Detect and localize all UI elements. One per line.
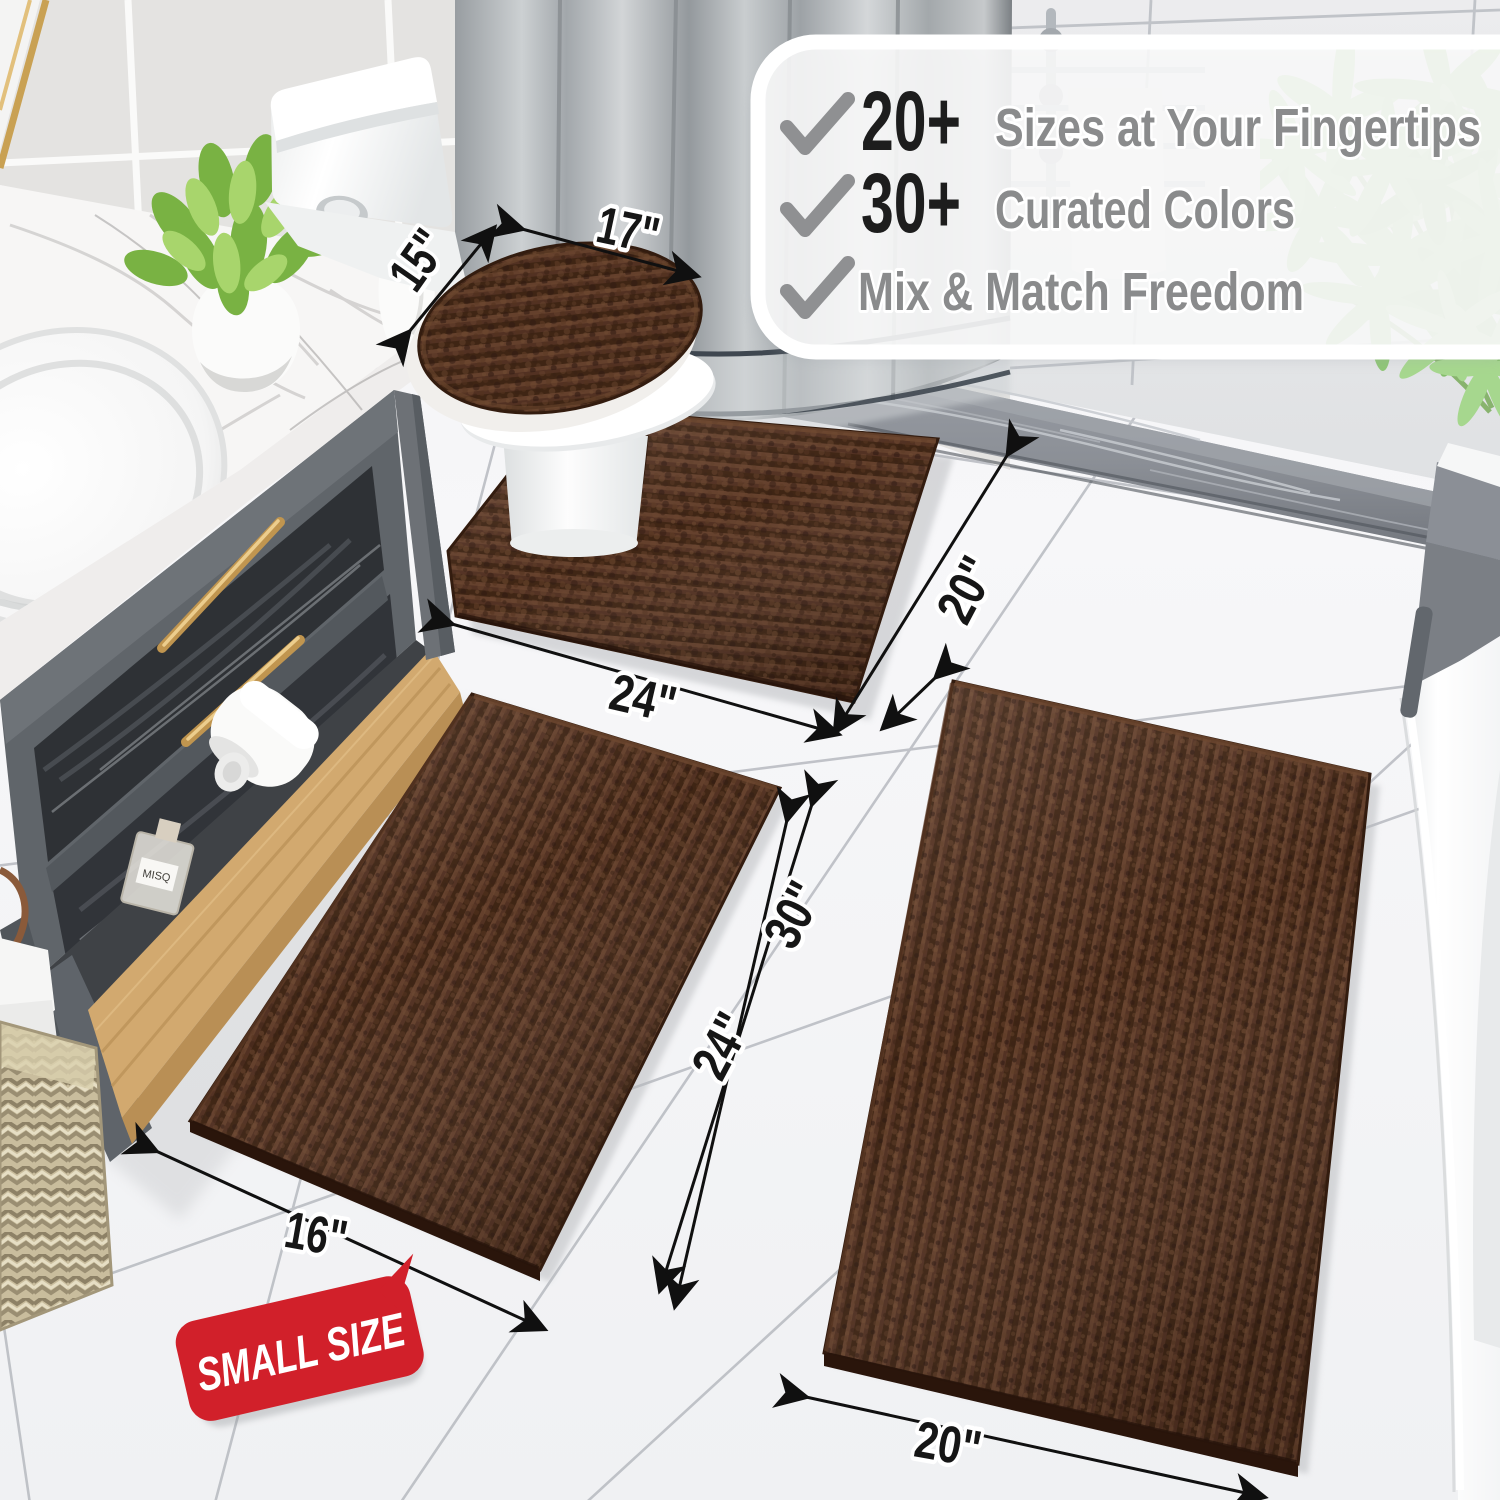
svg-text:Mix & Match Freedom: Mix & Match Freedom	[858, 262, 1304, 322]
svg-text:Sizes at Your Fingertips: Sizes at Your Fingertips	[995, 98, 1481, 158]
svg-text:Curated Colors: Curated Colors	[995, 180, 1295, 240]
svg-text:16": 16"	[280, 1201, 351, 1269]
svg-text:20+: 20+	[861, 74, 961, 168]
svg-text:20": 20"	[910, 1411, 985, 1480]
svg-text:30+: 30+	[861, 156, 961, 250]
